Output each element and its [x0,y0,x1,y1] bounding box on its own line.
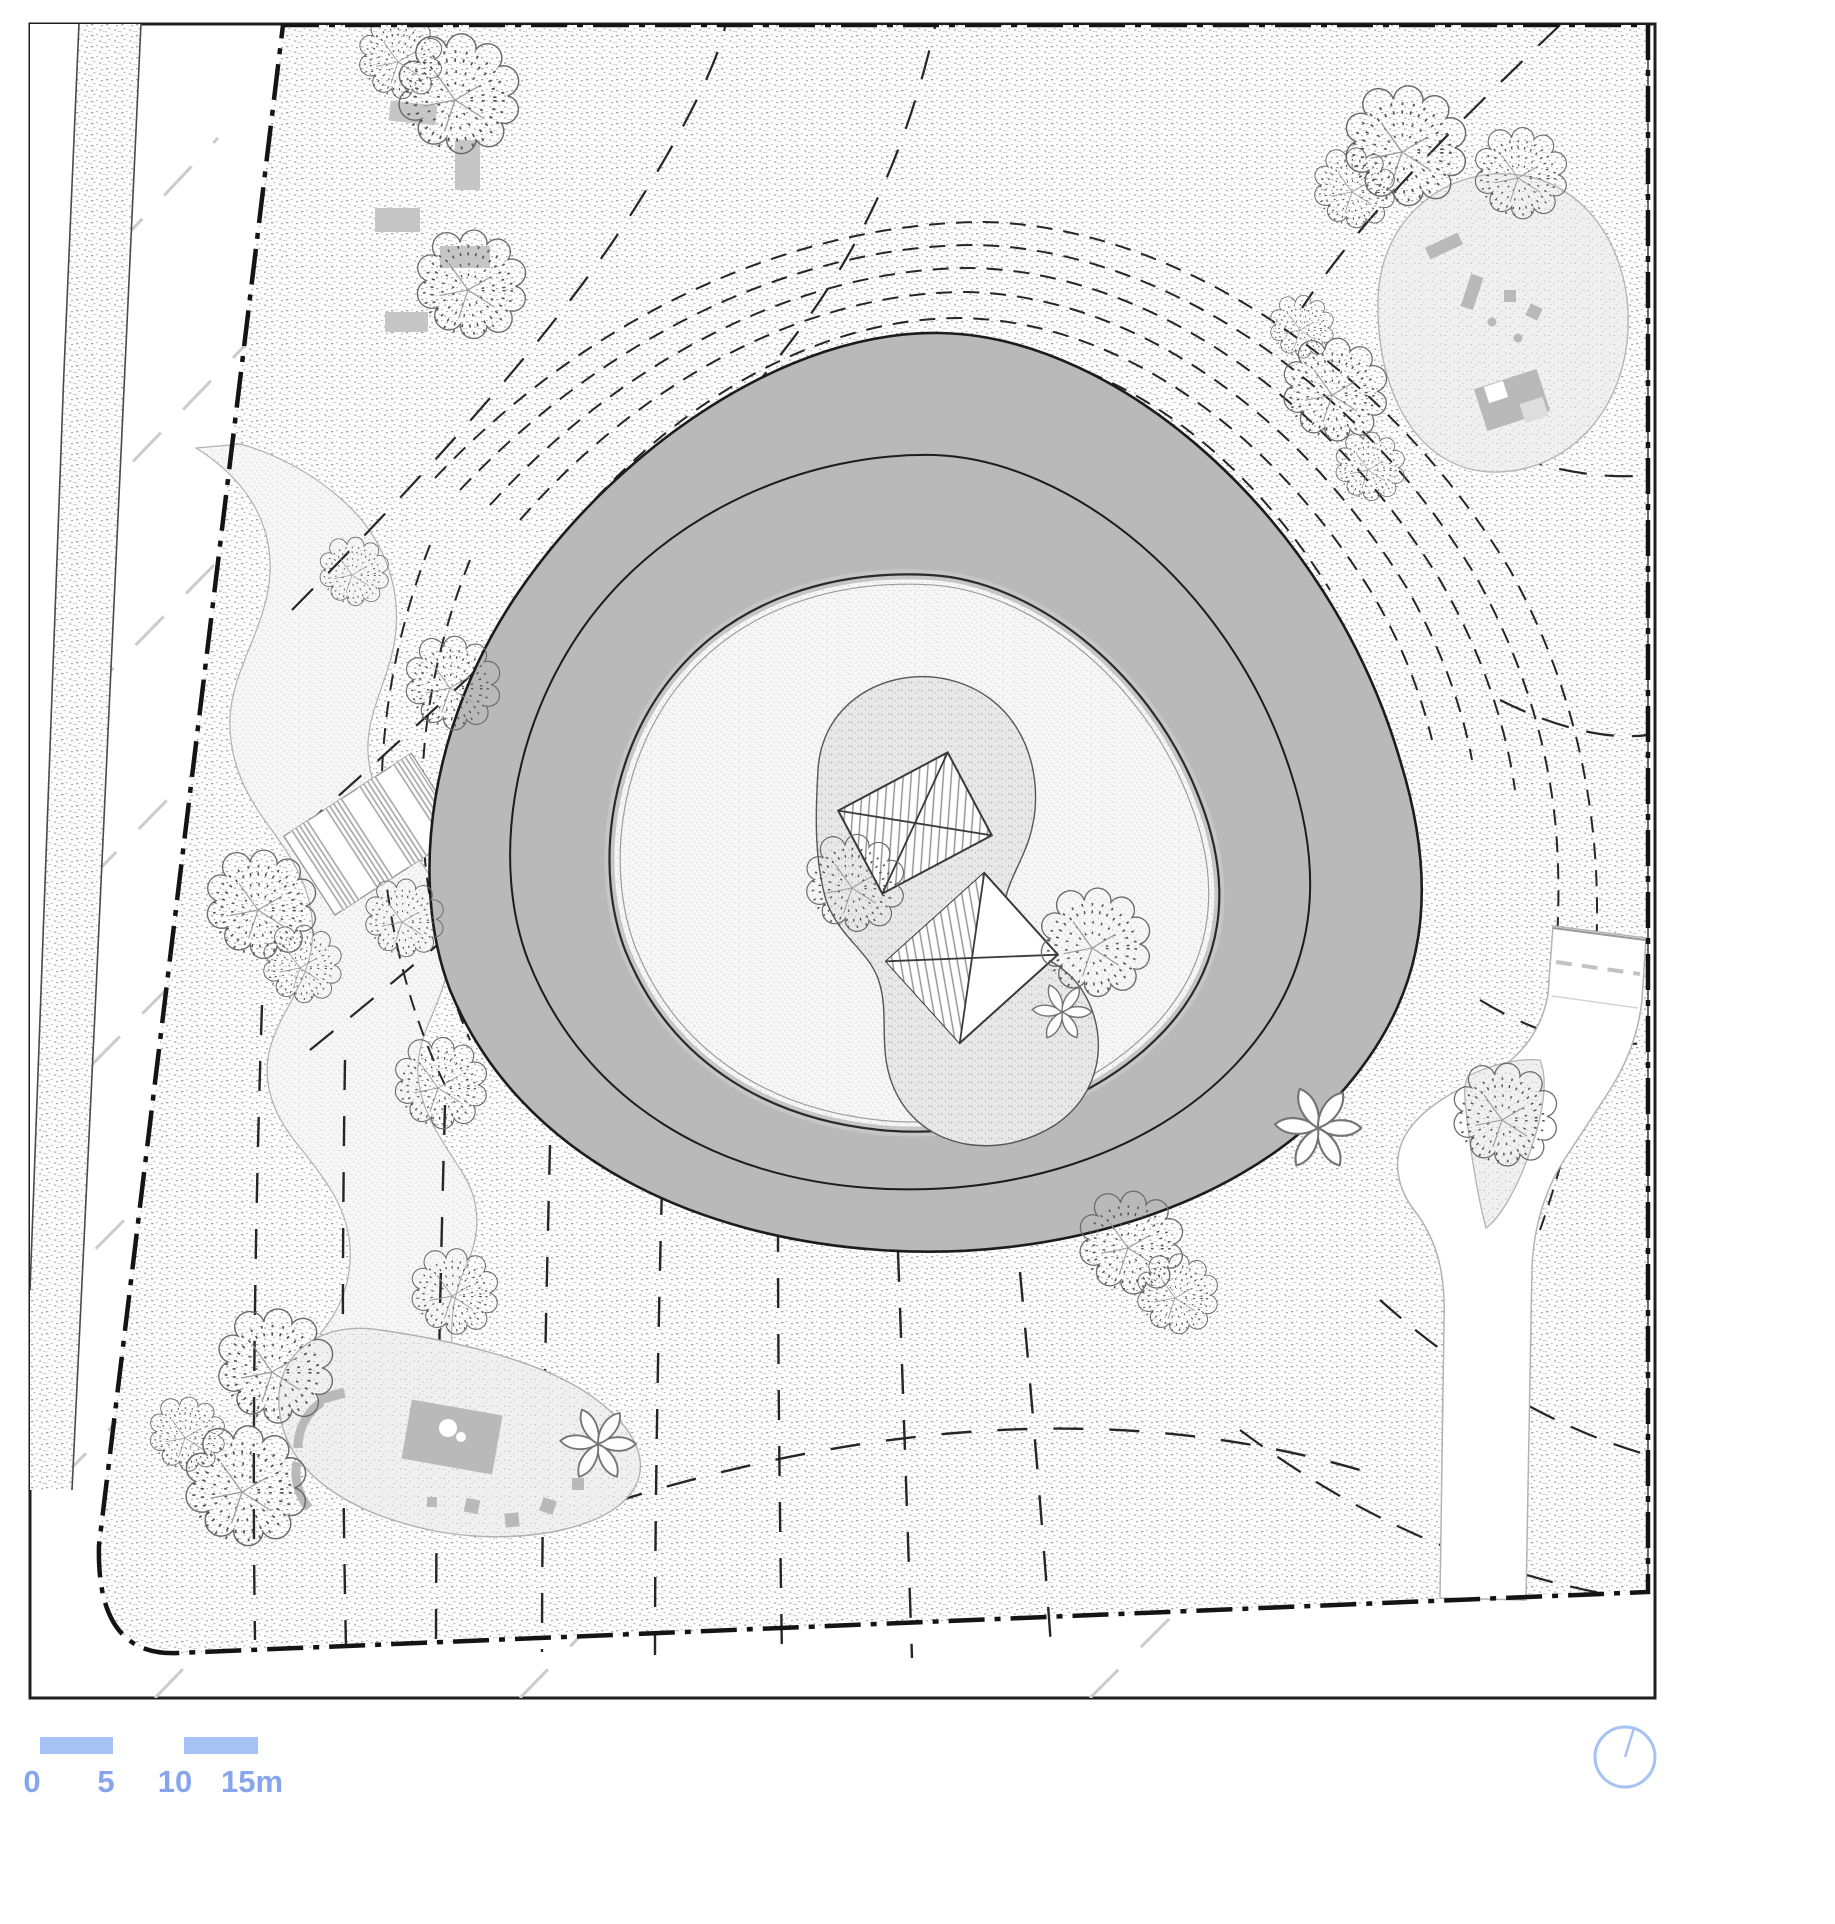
scale-label-0: 0 [23,1764,40,1799]
scale-bar-segment [40,1737,113,1754]
site-plan-page: 0 5 10 15m [0,0,1835,1924]
play-area-northeast [1378,174,1628,472]
scale-label-5: 5 [97,1764,114,1799]
scale-bar-segment [184,1737,258,1754]
site-plan-canvas: 0 5 10 15m [0,0,1835,1924]
scale-label-10: 10 [158,1764,192,1799]
scale-label-15m: 15m [221,1764,283,1799]
north-indicator-icon [1595,1727,1655,1787]
scale-bar: 0 5 10 15m [23,1737,283,1799]
